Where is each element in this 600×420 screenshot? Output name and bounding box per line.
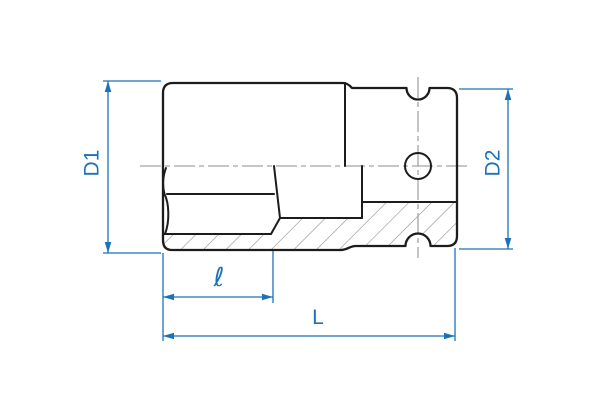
length-arrow-left-icon: [163, 333, 174, 340]
hex-depth-label: ℓ: [213, 263, 225, 293]
d2-arrow-up-icon: [505, 89, 512, 100]
length-arrow-right-icon: [444, 333, 455, 340]
hex-depth-arrow-right-icon: [262, 294, 273, 301]
d2-label: D2: [482, 150, 505, 177]
dimension-overall-length: L: [163, 248, 455, 341]
hex-depth-arrow-left-icon: [163, 294, 174, 301]
d1-arrow-down-icon: [105, 242, 112, 253]
dimension-d1: D1: [81, 81, 162, 253]
length-label: L: [312, 306, 324, 329]
d1-label: D1: [81, 150, 104, 177]
socket-technical-drawing: D1 D2 ℓ L: [0, 0, 600, 420]
d1-arrow-up-icon: [105, 81, 112, 92]
socket-technical-drawing-page: D1 D2 ℓ L: [0, 0, 600, 420]
dimension-d2: D2: [459, 89, 513, 249]
dimension-hex-depth: ℓ: [163, 251, 273, 341]
d2-arrow-down-icon: [505, 238, 512, 249]
